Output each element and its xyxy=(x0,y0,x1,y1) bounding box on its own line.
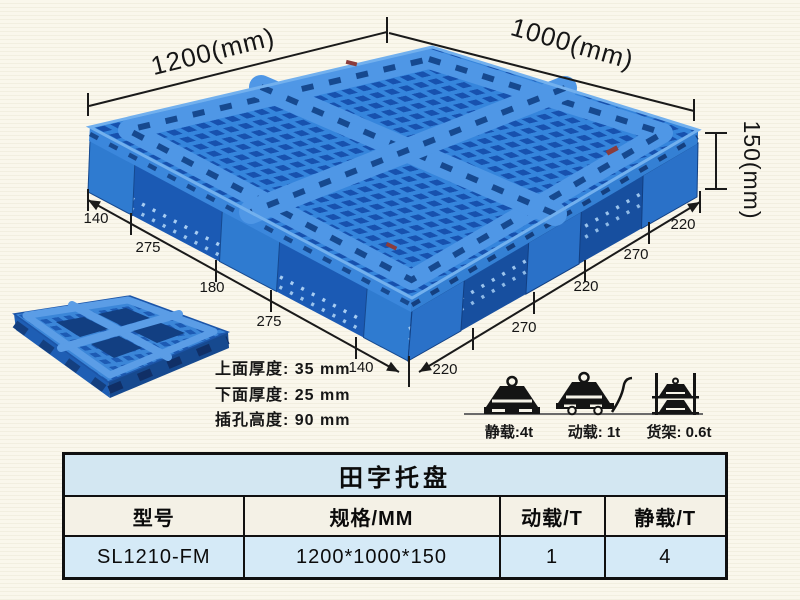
spec-table-wrap: 田字托盘 型号 规格/MM 动载/T 静载/T SL1210-FM 1200*1… xyxy=(62,452,725,580)
col-header-model: 型号 xyxy=(64,496,244,536)
dim-label: 220 xyxy=(573,278,598,295)
col-header-static-load: 静载/T xyxy=(605,496,727,536)
dim-label: 140 xyxy=(348,359,373,376)
load-capacity-icons: 静载:4t 动载: 1t 货架: 0.6t xyxy=(464,373,712,441)
small-pallet-underside xyxy=(14,296,229,398)
table-title: 田字托盘 xyxy=(64,454,727,497)
dim-label: 220 xyxy=(670,216,695,233)
static-load-weight-icon xyxy=(484,377,540,414)
spec-bottom-thickness: 下面厚度: 25 mm xyxy=(215,385,350,404)
dim-label: 140 xyxy=(83,210,108,227)
thickness-specs: 上面厚度: 35 mm 下面厚度: 25 mm 插孔高度: 90 mm xyxy=(215,359,350,429)
cell-dynamic-load: 1 xyxy=(500,536,605,579)
static-load-label: 静载:4t xyxy=(485,423,533,441)
dim-label: 275 xyxy=(256,313,281,330)
spec-fork-height: 插孔高度: 90 mm xyxy=(215,410,350,429)
product-datasheet: 1200(mm) 1000(mm) 150(mm) 140 275 180 27… xyxy=(0,0,800,600)
cell-size: 1200*1000*150 xyxy=(244,536,500,579)
cell-model: SL1210-FM xyxy=(64,536,244,579)
table-row: SL1210-FM 1200*1000*150 1 4 xyxy=(64,536,727,579)
rack-load-label: 货架: 0.6t xyxy=(646,423,711,441)
dim-label: 180 xyxy=(199,279,224,296)
dim-label: 275 xyxy=(135,239,160,256)
col-header-dynamic-load: 动载/T xyxy=(500,496,605,536)
cell-static-load: 4 xyxy=(605,536,727,579)
dim-label: 220 xyxy=(432,361,457,378)
dim-height-label: 150(mm) xyxy=(739,120,765,219)
dim-label: 270 xyxy=(623,246,648,263)
pallet-illustration: 1200(mm) 1000(mm) 150(mm) 140 275 180 27… xyxy=(0,0,800,452)
dim-width-label: 1000(mm) xyxy=(508,11,638,75)
rack-load-shelf-icon xyxy=(652,373,699,415)
dynamic-load-trolley-icon xyxy=(556,373,632,414)
pallet-top-deck xyxy=(90,47,698,298)
dim-length-label: 1200(mm) xyxy=(148,21,278,81)
spec-table: 田字托盘 型号 规格/MM 动载/T 静载/T SL1210-FM 1200*1… xyxy=(62,452,728,580)
dynamic-load-label: 动载: 1t xyxy=(568,423,621,441)
col-header-size: 规格/MM xyxy=(244,496,500,536)
spec-top-thickness: 上面厚度: 35 mm xyxy=(215,359,350,378)
dim-label: 270 xyxy=(511,319,536,336)
